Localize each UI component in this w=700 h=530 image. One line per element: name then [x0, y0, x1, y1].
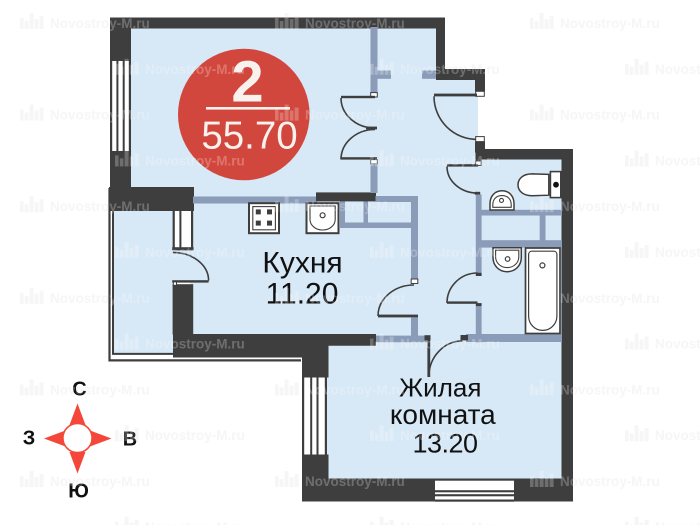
svg-text:55.70: 55.70	[201, 115, 297, 158]
svg-text:З: З	[23, 428, 36, 450]
svg-text:Жилая: Жилая	[399, 373, 481, 403]
svg-text:комната: комната	[390, 399, 496, 430]
svg-text:Кухня: Кухня	[262, 247, 342, 280]
svg-text:2: 2	[231, 50, 263, 115]
